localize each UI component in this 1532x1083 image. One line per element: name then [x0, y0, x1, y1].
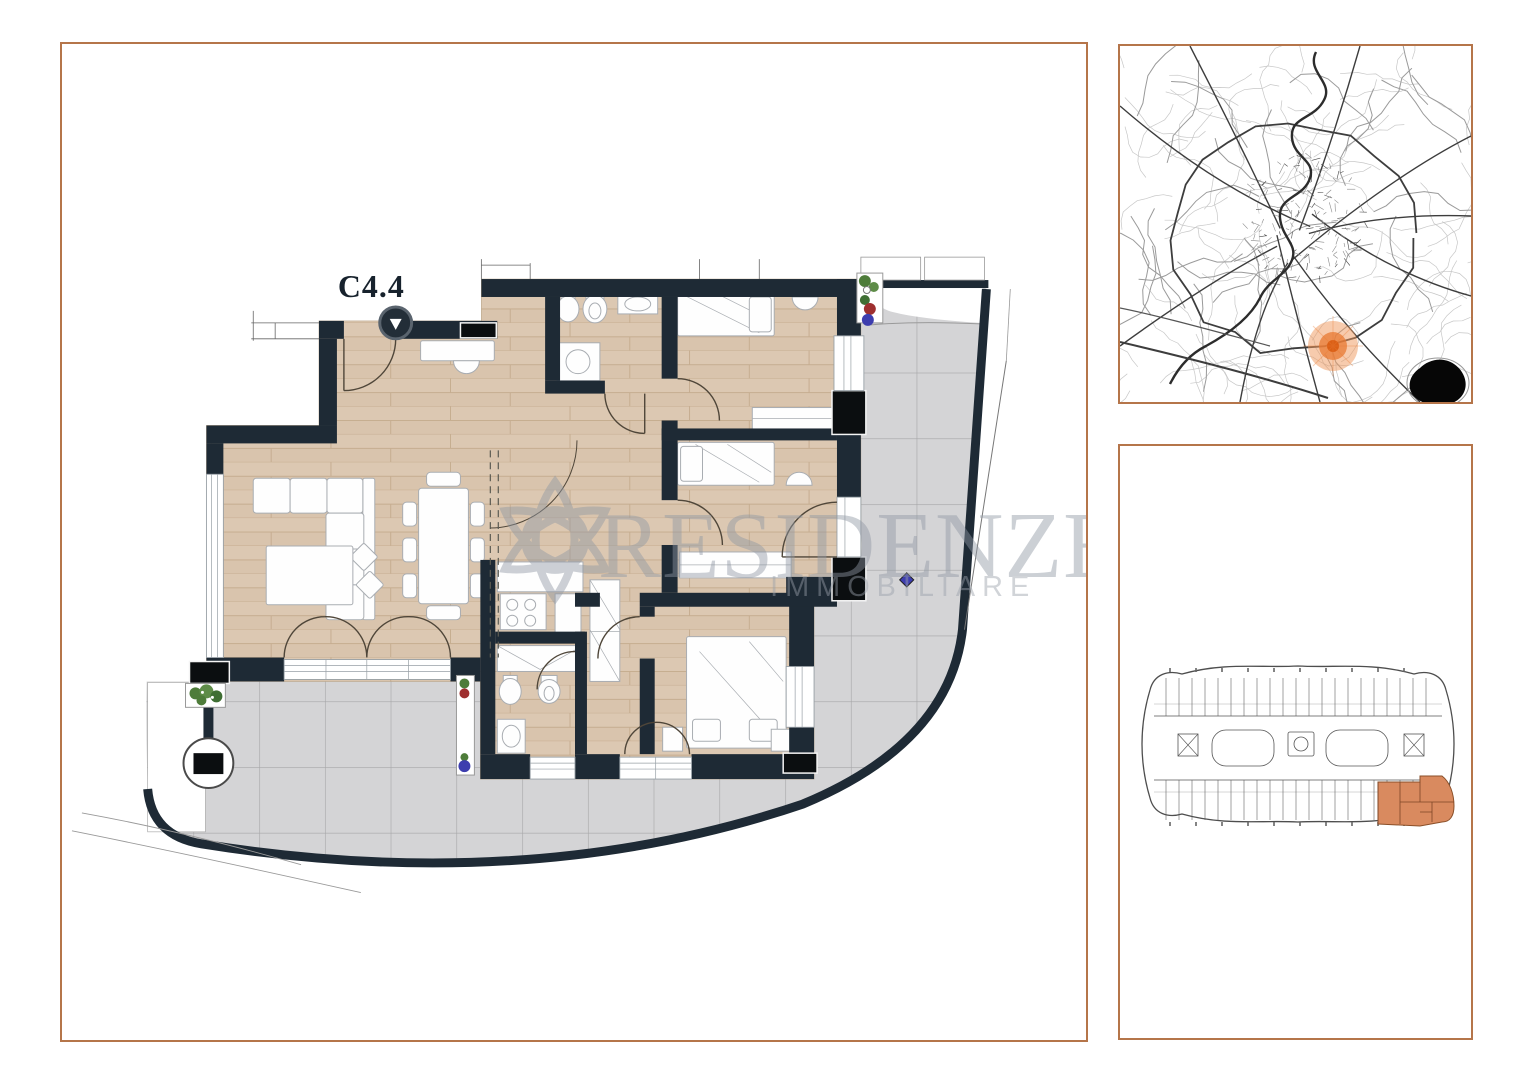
city-map-panel	[1118, 44, 1473, 404]
lake	[1407, 358, 1469, 402]
unit-label: C4.4	[338, 269, 405, 304]
river	[1120, 52, 1328, 398]
unit-highlight	[1378, 776, 1454, 826]
watermark-subtitle: IMMOBILIARE	[770, 571, 1036, 603]
floor-plan-drawing: RESIDENZE IMMOBILIARE C4.4	[62, 44, 1086, 1040]
coffee-table	[266, 546, 353, 605]
road-network	[1120, 46, 1471, 402]
entrance-marker-icon	[380, 307, 412, 339]
round-column	[184, 738, 234, 788]
kitchen-stove	[500, 594, 546, 630]
location-marker-icon	[1303, 316, 1363, 376]
city-map	[1120, 46, 1471, 402]
floor-plan-panel: RESIDENZE IMMOBILIARE C4.4	[60, 42, 1088, 1042]
key-plan-panel	[1118, 444, 1473, 1040]
building-key-plan	[1120, 446, 1471, 1038]
